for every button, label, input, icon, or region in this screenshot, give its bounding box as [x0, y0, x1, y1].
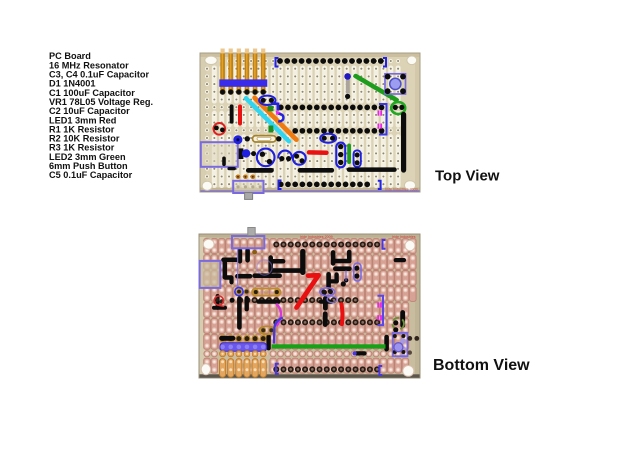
- svg-text:Bottom View: Bottom View: [433, 357, 530, 374]
- svg-text:Iride Industries 2009: Iride Industries 2009: [385, 188, 418, 192]
- svg-text:Iride Industries 2009: Iride Industries 2009: [300, 235, 333, 239]
- svg-text:Iride Industries: Iride Industries: [392, 235, 416, 239]
- svg-text:Top View: Top View: [435, 168, 500, 185]
